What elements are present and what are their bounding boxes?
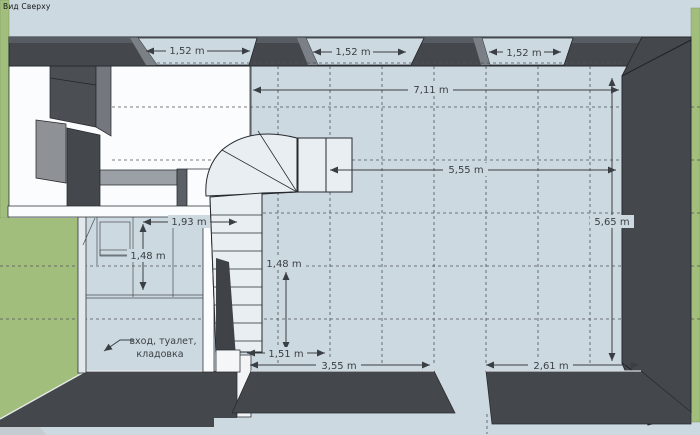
dim-window-2: 1,52 m <box>335 47 370 58</box>
box-side-dark <box>177 169 187 208</box>
bottom-wall-center <box>232 371 455 413</box>
counter-gray <box>100 170 177 185</box>
floorplan-drawing: 1,52 m 1,52 m 1,52 m 7,11 m 5,55 m 5,65 … <box>0 0 700 435</box>
dim-total-width: 7,11 m <box>413 85 448 96</box>
dim-hall-depth: 1,48 m <box>130 251 165 262</box>
dim-stair-width: 1,51 m <box>268 349 303 360</box>
bottom-left-outside <box>0 427 46 435</box>
annotation-line-1: вход, туалет, <box>129 336 196 347</box>
dim-main-depth: 5,65 m <box>594 217 629 228</box>
view-name-label: Вид Сверху <box>3 2 51 11</box>
dim-hall-width: 1,93 m <box>171 217 206 228</box>
dim-window-1: 1,52 m <box>169 46 204 57</box>
ground-green-left-strip <box>0 0 9 218</box>
dim-bottom-right: 2,61 m <box>533 361 568 372</box>
stair-landing-step-1 <box>298 138 326 192</box>
room-left-wall <box>78 215 86 373</box>
sketchup-viewport[interactable]: Вид Сверху <box>0 0 700 435</box>
dim-main-width: 5,55 m <box>448 165 483 176</box>
dim-window-3: 1,52 m <box>506 48 541 59</box>
cabinet-low-left <box>36 120 66 183</box>
annotation-line-2: кладовка <box>136 349 183 360</box>
dim-bottom-left: 3,55 m <box>321 361 356 372</box>
stair-wall-foot-dark <box>204 371 237 418</box>
cabinet-mid-dark <box>67 128 100 212</box>
right-wall <box>622 37 691 425</box>
stair-landing-step-2 <box>326 138 352 192</box>
ground-green-right <box>691 8 700 422</box>
dim-stair-run: 1,48 m <box>266 259 301 270</box>
stair-bottom-landing <box>216 350 240 372</box>
